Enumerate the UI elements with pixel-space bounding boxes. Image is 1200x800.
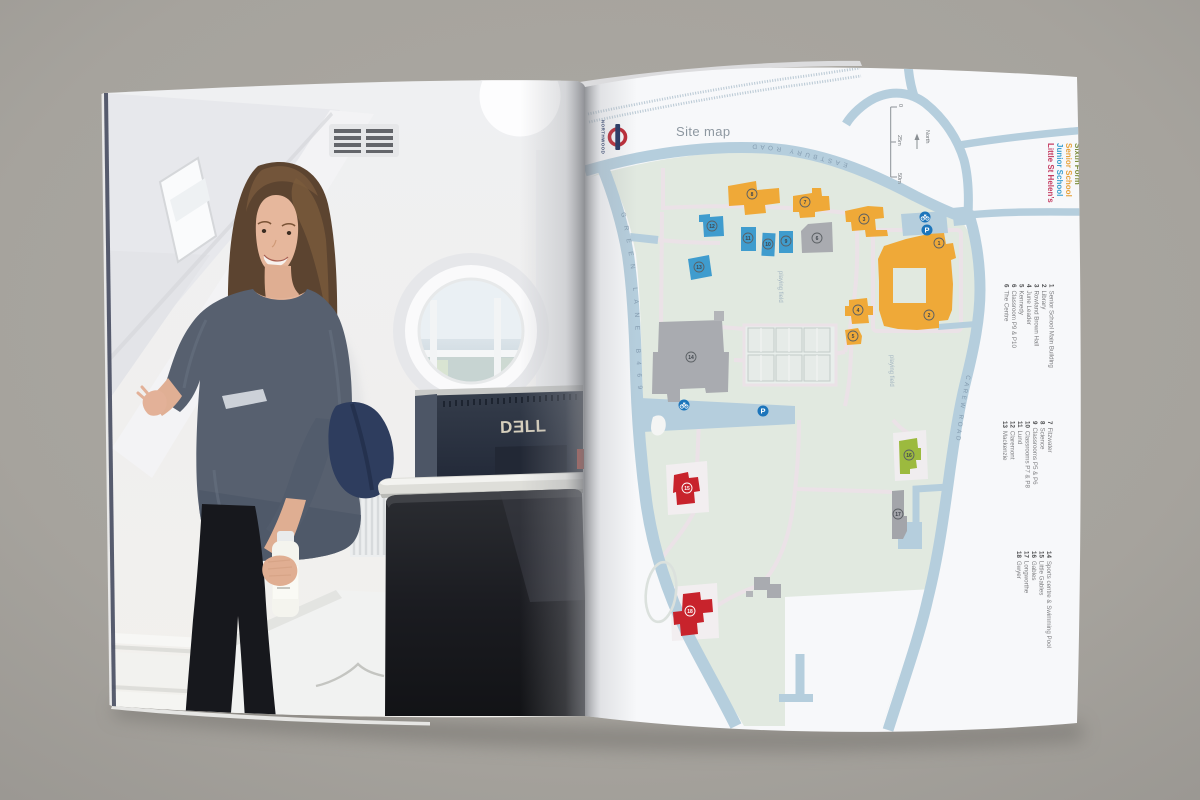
svg-text:2: 2: [928, 313, 931, 319]
svg-text:3: 3: [863, 217, 866, 223]
svg-text:10Classrooms P7 & P8: 10Classrooms P7 & P8: [1024, 421, 1031, 489]
svg-text:North: North: [924, 130, 930, 143]
svg-text:25m: 25m: [896, 135, 902, 146]
svg-text:9: 9: [785, 239, 788, 245]
svg-text:12: 12: [709, 224, 715, 230]
svg-text:6The Centre: 6The Centre: [1003, 284, 1010, 322]
svg-text:Little St Helen’s: Little St Helen’s: [1046, 143, 1055, 203]
svg-text:17Longworthe: 17Longworthe: [1023, 551, 1030, 594]
svg-text:13Mackenzie: 13Mackenzie: [1001, 421, 1008, 461]
svg-text:Site map: Site map: [676, 124, 731, 139]
svg-text:4June Leader: 4June Leader: [1025, 284, 1032, 325]
svg-text:1: 1: [938, 241, 941, 247]
svg-text:1Senior School Main Building: 1Senior School Main Building: [1048, 284, 1055, 368]
svg-text:18: 18: [687, 609, 693, 615]
svg-text:6: 6: [816, 236, 819, 242]
svg-text:11: 11: [745, 236, 751, 242]
svg-text:12Claremont: 12Claremont: [1009, 421, 1016, 460]
svg-text:5: 5: [852, 334, 855, 340]
svg-text:11Lund: 11Lund: [1016, 421, 1023, 445]
svg-text:P: P: [760, 407, 765, 416]
svg-text:0: 0: [897, 104, 903, 107]
svg-text:4: 4: [857, 308, 860, 314]
svg-text:16Gables: 16Gables: [1030, 551, 1037, 581]
svg-text:Senior School: Senior School: [1064, 143, 1073, 197]
svg-text:playing field: playing field: [777, 271, 783, 303]
svg-text:8: 8: [751, 192, 754, 198]
svg-text:P: P: [924, 226, 929, 235]
svg-text:14: 14: [688, 355, 694, 361]
svg-text:9Classrooms P5 & P6: 9Classrooms P5 & P6: [1031, 421, 1038, 485]
svg-text:18Gwyer: 18Gwyer: [1015, 551, 1022, 579]
svg-text:14Sports centre & Swimming Poo: 14Sports centre & Swimming Pool: [1045, 551, 1052, 648]
svg-text:17: 17: [895, 512, 901, 518]
svg-text:15: 15: [684, 486, 690, 492]
svg-text:3Rowland Brown Hall: 3Rowland Brown Hall: [1033, 284, 1040, 346]
svg-text:6Classroom P9 & P10: 6Classroom P9 & P10: [1010, 284, 1017, 348]
svg-text:7: 7: [804, 200, 807, 206]
svg-text:Junior School: Junior School: [1055, 143, 1064, 196]
svg-text:15Little Gables: 15Little Gables: [1038, 551, 1045, 595]
svg-text:16: 16: [906, 453, 912, 459]
svg-text:playing field: playing field: [888, 355, 894, 387]
svg-text:50m: 50m: [896, 173, 902, 184]
svg-text:13: 13: [696, 265, 702, 271]
svg-text:10: 10: [765, 242, 771, 248]
